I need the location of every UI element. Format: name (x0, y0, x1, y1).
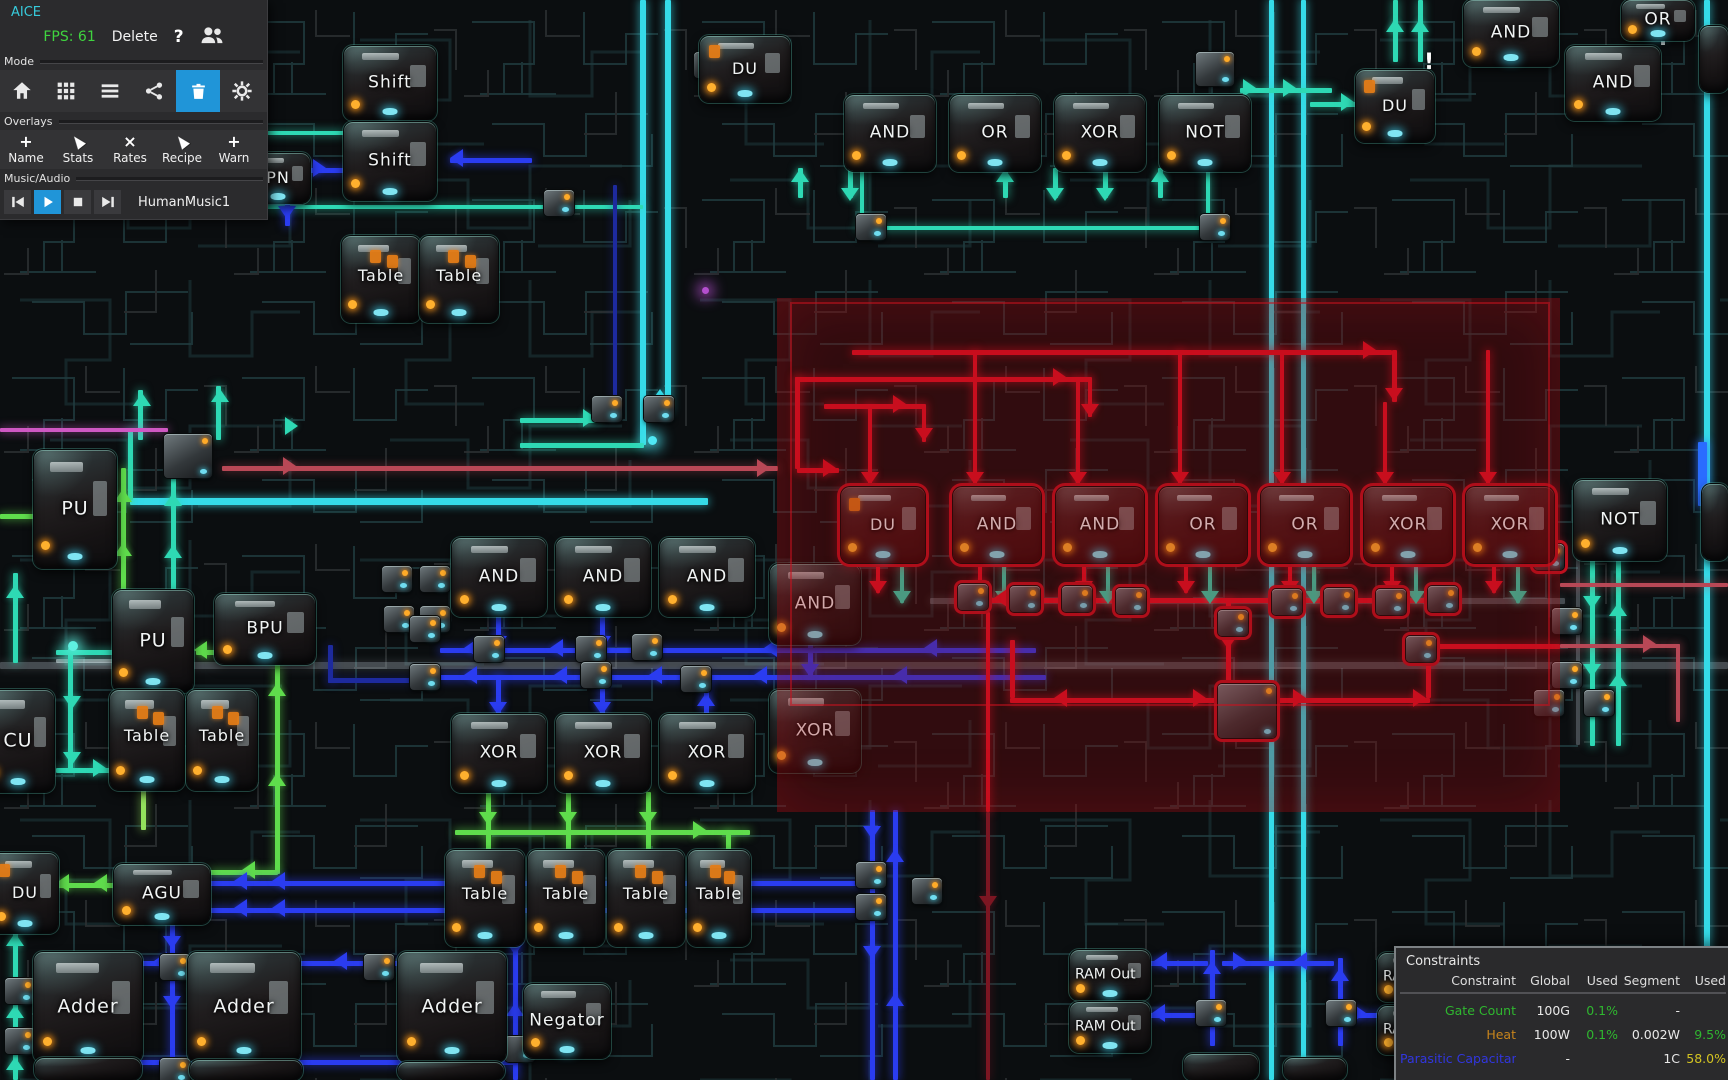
gate-negator[interactable]: Negator (524, 984, 610, 1058)
track-name: HumanMusic1 (138, 195, 230, 210)
gate-adder[interactable]: Adder (188, 952, 300, 1062)
gate-table[interactable]: Table (110, 690, 184, 790)
gate-label: AND (660, 567, 754, 587)
gate-label: AND (953, 515, 1041, 535)
gate-label: Shift (344, 151, 436, 171)
gate-not[interactable]: NOT (1574, 480, 1666, 560)
gate-table[interactable]: Table (528, 850, 604, 946)
constraint-cell: 9.5% (1680, 1027, 1726, 1042)
gate-partial[interactable] (1184, 1054, 1258, 1080)
gate-partial[interactable] (398, 1062, 504, 1080)
app-title: AICE (0, 0, 267, 22)
gate-adder[interactable]: Adder (34, 952, 142, 1062)
gate-label: AND (1566, 73, 1660, 93)
delete-mode-button[interactable] (176, 70, 220, 112)
gate-xor[interactable]: XOR (556, 714, 650, 792)
gate-du[interactable]: DU (0, 853, 58, 933)
gate-label: AND (556, 567, 650, 587)
constraints-title: Constraints (1396, 948, 1728, 973)
gate-shift[interactable]: Shift (344, 46, 436, 120)
music-section-label: Music/Audio (0, 169, 267, 187)
gate-table[interactable]: Table (187, 690, 257, 790)
gate-not[interactable]: NOT (1160, 95, 1250, 171)
gate-table[interactable]: Table (420, 236, 498, 322)
gate-and[interactable]: AND (1566, 46, 1660, 120)
constraint-cell: Heat (1400, 1027, 1516, 1042)
gate-label: DU (1356, 96, 1434, 115)
gate-label: AND (845, 123, 935, 143)
gate-du[interactable]: DU (1356, 70, 1434, 142)
overlay-toggle-name[interactable]: +Name (0, 132, 52, 165)
share-mode-button[interactable] (132, 70, 176, 112)
gate-and[interactable]: AND (556, 538, 650, 616)
gate-table[interactable]: Table (446, 850, 524, 946)
gate-partial[interactable] (1700, 26, 1728, 92)
gate-label: OR (1261, 515, 1349, 535)
gate-label: DU (841, 515, 925, 534)
share-icon (144, 81, 164, 101)
gate-label: XOR (1055, 123, 1145, 143)
gate-partial[interactable] (1702, 484, 1728, 560)
gate-partial[interactable] (1284, 1058, 1346, 1080)
constraint-cell: - (1516, 1051, 1570, 1066)
overlay-label: Recipe (162, 151, 202, 165)
gate-table[interactable]: Table (688, 850, 750, 946)
home-icon (11, 80, 33, 102)
gate-label: XOR (452, 743, 546, 763)
gate-or[interactable]: OR (1261, 487, 1349, 563)
gate-label: RAM Out (1070, 1019, 1150, 1035)
gate-label: Table (420, 266, 498, 285)
gate-label: PU (113, 630, 193, 652)
gate-pu[interactable]: PU (113, 590, 193, 692)
constraint-cell: 58.0% (1680, 1051, 1726, 1066)
overlay-label: Name (8, 151, 43, 165)
gate-ram-out[interactable]: RAM Out (1070, 950, 1150, 1000)
gate-xor[interactable]: XOR (1055, 95, 1145, 171)
gate-ram-out[interactable]: RAM Out (1070, 1002, 1150, 1052)
gate-or[interactable]: OR (950, 95, 1040, 171)
constraints-header: Used (1680, 973, 1726, 994)
gate-label: Adder (398, 996, 506, 1018)
mode-section-label: Mode (0, 52, 267, 70)
gate-and[interactable]: AND (660, 538, 754, 616)
gate-and[interactable]: AND (953, 487, 1041, 563)
help-icon[interactable]: ? (174, 27, 184, 47)
gate-shift[interactable]: Shift (344, 122, 436, 200)
gate-label: NOT (1574, 510, 1666, 530)
constraint-cell (1680, 1003, 1726, 1018)
gate-label: Table (446, 884, 524, 903)
gate-label: Negator (524, 1011, 610, 1031)
overlay-label: Rates (113, 151, 147, 165)
next-track-button[interactable] (94, 190, 121, 214)
gate-label: PU (34, 498, 116, 520)
cursor-icon (177, 132, 187, 150)
gate-partial[interactable] (190, 1060, 302, 1080)
gate-agu[interactable]: AGU (114, 864, 210, 924)
gate-label: NOT (1160, 123, 1250, 143)
circuit-canvas[interactable]: !! ShiftShiftPNTableTableDUANDORXORNOTDU… (0, 0, 1728, 1080)
gate-and[interactable]: AND (452, 538, 546, 616)
constraint-cell: 0.1% (1570, 1003, 1618, 1018)
gate-label: AND (452, 567, 546, 587)
gate-adder[interactable]: Adder (398, 952, 506, 1062)
constraint-cell: 100W (1516, 1027, 1570, 1042)
gate-cu[interactable]: CU (0, 690, 54, 792)
overlay-toggle-stats[interactable]: Stats (52, 132, 104, 165)
gate-and[interactable]: AND (1464, 0, 1558, 66)
constraint-cell (1570, 1051, 1618, 1066)
gate-du[interactable]: DU (700, 36, 790, 102)
gate-bpu[interactable]: BPU (215, 594, 315, 664)
constraints-header: Used (1570, 973, 1618, 994)
constraint-cell: - (1618, 1003, 1680, 1018)
gate-label: Table (187, 726, 257, 745)
constraint-cell: Gate Count (1400, 1003, 1516, 1018)
x-icon: × (123, 132, 136, 150)
previous-track-button[interactable] (4, 190, 31, 214)
gate-label: XOR (660, 743, 754, 763)
constraints-panel: Constraints ConstraintGlobalUsedSegmentU… (1394, 946, 1728, 1080)
play-button[interactable] (34, 190, 61, 214)
overlay-label: Stats (63, 151, 94, 165)
gate-du[interactable]: DU (841, 487, 925, 563)
gate-label: DU (700, 59, 790, 78)
constraints-header: Global (1516, 973, 1570, 994)
menu-icon (100, 81, 120, 101)
overlays-section-label: Overlays (0, 112, 267, 130)
plus-icon: + (19, 132, 32, 150)
gate-xor[interactable]: XOR (770, 690, 860, 772)
gate-label: XOR (556, 743, 650, 763)
gate-label: Table (688, 884, 750, 903)
mode-status-label: Delete (112, 29, 158, 45)
overlay-label: Warn (219, 151, 250, 165)
gate-label: AND (770, 594, 860, 614)
gate-xor[interactable]: XOR (1466, 487, 1554, 563)
control-panel: AICE FPS: 61 Delete ? Mode Overlays +Nam… (0, 0, 268, 220)
constraint-cell: 1C (1618, 1051, 1680, 1066)
stop-button[interactable] (64, 190, 91, 214)
constraints-table: ConstraintGlobalUsedSegmentUsedGate Coun… (1396, 973, 1728, 1066)
overlay-toggle-warn[interactable]: +Warn (208, 132, 260, 165)
constraints-header: Segment (1618, 973, 1680, 994)
gate-label: Table (110, 726, 184, 745)
gate-label: OR (1159, 515, 1247, 535)
gate-label: RAM Out (1070, 967, 1150, 983)
gate-xor[interactable]: XOR (1364, 487, 1452, 563)
gate-or[interactable]: OR (1159, 487, 1247, 563)
constraints-header: Constraint (1400, 973, 1516, 994)
gate-label: CU (0, 730, 54, 752)
grid-mode-button[interactable] (44, 70, 88, 112)
overlay-toggle-recipe[interactable]: Recipe (156, 132, 208, 165)
gate-label: Table (342, 266, 420, 285)
gate-partial[interactable] (35, 1058, 141, 1080)
gate-xor[interactable]: XOR (452, 714, 546, 792)
gate-label: DU (0, 883, 58, 902)
gate-label: Adder (34, 996, 142, 1018)
overlay-toggle-rates[interactable]: ×Rates (104, 132, 156, 165)
gate-label: AND (1464, 23, 1558, 43)
constraint-cell: 0.002W (1618, 1027, 1680, 1042)
cursor-icon (73, 132, 83, 150)
constraint-cell: 100G (1516, 1003, 1570, 1018)
gate-or[interactable]: OR (1622, 0, 1694, 40)
music-controls: HumanMusic1 (0, 187, 267, 219)
constraint-cell: Parasitic Capacitance (1400, 1051, 1516, 1066)
gate-and[interactable]: AND (1056, 487, 1144, 563)
grid-icon (56, 81, 76, 101)
gate-label: OR (1622, 10, 1694, 30)
fps-counter: FPS: 61 (43, 29, 95, 45)
gate-table[interactable]: Table (608, 850, 684, 946)
gate-label: OR (950, 123, 1040, 143)
gear-icon (231, 80, 253, 102)
home-button[interactable] (0, 70, 44, 112)
plus-icon: + (227, 132, 240, 150)
multiplayer-icon[interactable] (200, 25, 224, 49)
gate-label: XOR (1364, 515, 1452, 535)
gate-label: BPU (215, 619, 315, 639)
mode-toolbar (0, 70, 267, 112)
gate-label: Adder (188, 996, 300, 1018)
gate-label: Table (528, 884, 604, 903)
gate-and[interactable]: AND (770, 564, 860, 644)
gate-pu[interactable]: PU (34, 450, 116, 568)
gate-label: Table (608, 884, 684, 903)
gate-label: XOR (1466, 515, 1554, 535)
gate-label: AGU (114, 884, 210, 904)
gate-label: Shift (344, 73, 436, 93)
gate-table[interactable]: Table (342, 236, 420, 322)
overlays-toolbar: +NameStats×RatesRecipe+Warn (0, 130, 267, 169)
gate-label: AND (1056, 515, 1144, 535)
trash-icon (189, 81, 208, 101)
list-mode-button[interactable] (88, 70, 132, 112)
gate-label: XOR (770, 721, 860, 741)
gate-xor[interactable]: XOR (660, 714, 754, 792)
gate-and[interactable]: AND (845, 95, 935, 171)
settings-button[interactable] (220, 70, 264, 112)
constraint-cell: 0.1% (1570, 1027, 1618, 1042)
